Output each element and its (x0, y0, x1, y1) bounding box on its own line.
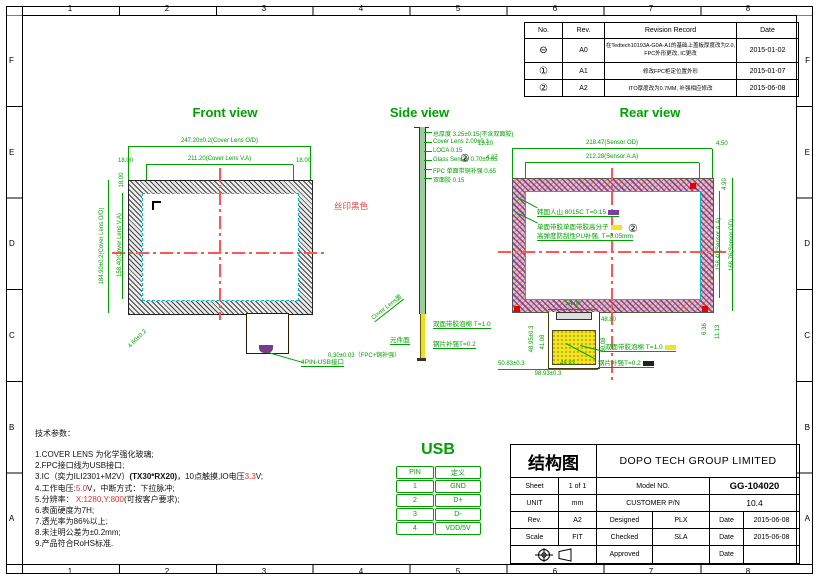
dim-line (122, 193, 123, 299)
frame-row-label: F (805, 56, 810, 65)
front-centerline-v (219, 168, 221, 320)
revision-row-rev: A2 (563, 80, 605, 97)
dim-line (128, 146, 311, 147)
model-label: Model NO. (597, 478, 710, 495)
note-line: 4.工作电压:5.0V，中断方式：下拉脉冲; (35, 483, 175, 494)
alignment-mark (702, 306, 708, 312)
side-layer-label: 双面胶 0.15 (433, 175, 464, 184)
date-value: 2015-06-08 (744, 512, 799, 529)
front-view-area (142, 193, 299, 301)
note-line: 5.分辨率： X:1280,Y:800(可按客户要求); (35, 494, 180, 505)
component-side-label: 元件面 (390, 334, 410, 345)
doc-type: 结构图 (511, 445, 597, 478)
frame-ticks-bottom (22, 565, 797, 573)
side-stack-fpc (420, 314, 425, 360)
note-seg: V; (256, 472, 263, 481)
note-seg: 4.工作电压: (35, 484, 76, 493)
frame-row-label: B (9, 423, 14, 432)
revision-row-rev: A0 (563, 39, 605, 63)
revision-row-no: ⊖ (525, 39, 563, 63)
dim-rear-left1: 13.20 (478, 141, 493, 147)
usb-header-def: 定义 (435, 466, 481, 479)
dim-tab-bottom1: 50.83±0.3 (498, 361, 525, 367)
rev-label: Rev. (511, 512, 559, 529)
dim-line (525, 162, 699, 163)
orientation-mark (152, 201, 161, 210)
usb-def: GND (435, 480, 481, 493)
note-line: 9.产品符合RoHS标准. (35, 538, 113, 549)
projection-symbol-cell (511, 546, 597, 563)
side-steel-label: 钢片补强T=0.2 (433, 338, 476, 349)
note-seg-red: X:1280,Y:800 (76, 495, 124, 504)
rear-pu-label: 高弹度防刮性PU补强, T=0.05mm (537, 230, 633, 241)
front-view-title: Front view (170, 105, 280, 120)
frame-col-label: 3 (254, 567, 274, 576)
dim-sensor-aa-width: 212.28(Sensor A.A) (525, 154, 699, 160)
rear-view-title: Rear view (600, 105, 700, 120)
designed-value: PLX (653, 512, 710, 529)
frame-row-label: E (9, 148, 14, 157)
side-layer-label: FPC 单面带铜补强 0.65 (433, 166, 496, 175)
purple-swatch (608, 210, 619, 215)
usb-def: VDD/5V (435, 522, 481, 535)
leader-line (424, 142, 432, 143)
sheet-value: 1 of 1 (559, 478, 597, 495)
frame-ticks-top (22, 7, 797, 15)
revision-header-rev: Rev. (563, 23, 605, 39)
note-seg: V，中断方式：下拉脉冲; (87, 484, 175, 493)
note-line: 1.COVER LENS 为化学强化玻璃; (35, 449, 154, 460)
rear-steel-text: 钢片补强T=0.2 (598, 360, 641, 367)
side-stack-glass (419, 127, 426, 314)
note-seg: 5.分辨率： (35, 495, 76, 504)
date-label: Date (710, 546, 744, 563)
note-line: 3.IC（奕力ILI2301+M2V）(TX30*RX20)，10点触摸,IO电… (35, 471, 263, 482)
dim-tab-width: 54.00 (548, 301, 598, 307)
title-block: 结构图 DOPO TECH GROUP LIMITED Sheet 1 of 1… (510, 444, 800, 564)
dim-line (548, 309, 598, 310)
note-seg-red: 5.0 (76, 484, 87, 493)
callout-2: ② (628, 222, 638, 235)
date-value: 2015-06-08 (744, 529, 799, 546)
usb-pin: 3 (396, 508, 434, 521)
frame-row-label: A (9, 514, 14, 523)
silk-print-label: 丝印黑色 (334, 200, 368, 212)
frame-row-label: A (805, 514, 810, 523)
frame-row-label: F (9, 56, 14, 65)
revision-row-rev: A1 (563, 63, 605, 80)
dim-front-od-width: 247.20±0.2(Cover Lens O/D) (128, 138, 311, 144)
frame-col-label: 4 (351, 4, 371, 13)
checked-value: SLA (653, 529, 710, 546)
scale-label: Scale (511, 529, 559, 546)
revision-header-date: Date (737, 23, 799, 39)
rear-tape-label: 韩国人山 8015C T=0.15 (537, 206, 619, 217)
dim-front-margin-right: 18.00 (296, 158, 311, 164)
fpc-thickness-label: 0.30±0.03（FPC+铜补强） (328, 350, 400, 359)
revision-header-record: Revision Record (605, 23, 737, 39)
notes-heading: 技术参数： (35, 428, 75, 439)
revision-table: No. Rev. Revision Record Date ⊖ A0 在Tedt… (524, 22, 799, 97)
dim-rear-right2: 4.90 (722, 168, 728, 200)
frame-col-label: 8 (738, 567, 758, 576)
frame-row-label: B (805, 423, 810, 432)
rear-foam-label: 双面带胶泡棉 T=1.0 (605, 341, 676, 352)
note-line: 6.表面硬度为7H; (35, 505, 94, 516)
dim-rear-right1: 4.50 (716, 141, 728, 147)
dim-line (108, 180, 109, 313)
revision-row-date: 2015-06-08 (737, 80, 799, 97)
frame-col-label: 4 (351, 567, 371, 576)
rev-value: A2 (559, 512, 597, 529)
ext-line (712, 149, 713, 178)
frame-col-label: 7 (641, 4, 661, 13)
leader-line (424, 160, 432, 161)
note-seg: (可按客户要求); (124, 495, 180, 504)
dark-swatch (643, 361, 654, 366)
dim-tab-left1: 48.95±0.3 (529, 309, 535, 369)
date-label: Date (710, 512, 744, 529)
sheet-label: Sheet (511, 478, 559, 495)
date-value (744, 546, 799, 563)
dim-front-va-width: 211.20(Cover Lens V.A) (146, 156, 293, 162)
checked-label: Checked (597, 529, 653, 546)
side-foam-label: 双面带胶泡棉 T=1.0 (433, 318, 491, 329)
revision-row-date: 2015-01-02 (737, 39, 799, 63)
frame-col-label: 3 (254, 4, 274, 13)
alignment-mark (514, 306, 520, 312)
usb-def: D- (435, 508, 481, 521)
dim-rear-br1: 6.36 (702, 313, 708, 345)
frame-col-label: 2 (157, 567, 177, 576)
dim-front-margin-top: 18.00 (119, 162, 125, 198)
usb-pin: 2 (396, 494, 434, 507)
usb-table-title: USB (396, 441, 480, 459)
frame-col-label: 1 (60, 567, 80, 576)
dim-rear-left2: 4.27 (486, 155, 498, 161)
rear-tape-text: 韩国人山 8015C T=0.15 (537, 209, 606, 216)
frame-row-label: D (9, 239, 15, 248)
rear-tab-connector (556, 312, 592, 320)
usb-header-pin: PIN (396, 466, 434, 479)
dim-tab-left2: 41.08 (540, 312, 546, 372)
yellow-swatch (665, 345, 676, 350)
note-line: 7.透光率为86%以上; (35, 516, 108, 527)
leader-line (424, 151, 432, 152)
dim-sensor-od-width: 218.47(Sensor OD) (512, 140, 712, 146)
designed-label: Designed (597, 512, 653, 529)
note-seg-red: 3.3 (245, 472, 256, 481)
frame-col-label: 6 (545, 4, 565, 13)
usb-pin-table: PIN 定义 1 GND 2 D+ 3 D- 4 VDD/5V (396, 466, 481, 535)
model-value: GG-104020 (710, 478, 799, 495)
usb-pin: 1 (396, 480, 434, 493)
frame-col-label: 8 (738, 4, 758, 13)
dim-tab-bottom3: 98.93±0.3 (516, 371, 580, 377)
note-line: 2.FPC接口线为USB接口; (35, 460, 124, 471)
approved-label: Approved (597, 546, 653, 563)
dim-line (512, 148, 712, 149)
side-stack-steel (417, 358, 426, 361)
frame-ticks-left (7, 15, 22, 565)
unit-label: UNIT (511, 495, 559, 512)
note-seg: ，10点触摸,IO电压 (177, 472, 245, 481)
frame-row-label: E (805, 148, 810, 157)
dim-line (719, 191, 720, 298)
dim-rear-br2: 11.13 (715, 316, 721, 348)
revision-row-date: 2015-01-07 (737, 63, 799, 80)
ext-line (512, 149, 513, 178)
frame-col-label: 1 (60, 4, 80, 13)
frame-row-label: C (9, 331, 15, 340)
note-seg-bold: (TX30*RX20) (129, 472, 177, 481)
revision-row-record: 修改FPC柜定位置外形 (605, 63, 737, 80)
side-layer-label: LOCA 0.15 (433, 148, 462, 154)
rear-foam-text: 双面带胶泡棉 T=1.0 (605, 344, 663, 351)
rear-steel-label: 钢片补强T=0.2 (598, 357, 654, 368)
customer-pn-value: 10.4 (710, 495, 799, 512)
frame-row-label: D (804, 239, 810, 248)
usb-connector (259, 345, 273, 353)
projection-symbol-icon (533, 548, 575, 562)
usb-pin: 4 (396, 522, 434, 535)
company-name: DOPO TECH GROUP LIMITED (597, 445, 799, 478)
frame-row-label: C (804, 331, 810, 340)
revision-row-record: 在Tedtech10193A-G0A-A1的基础上盖板厚度改为2.0, FPC外… (605, 39, 737, 63)
approved-value (653, 546, 710, 563)
customer-pn-label: CUSTOMER P/N (597, 495, 710, 512)
frame-col-label: 5 (448, 4, 468, 13)
note-line: 8.未注明公差为±0.2mm; (35, 527, 121, 538)
dim-tab-bottom2: 48.83 (560, 361, 575, 367)
revision-header-no: No. (525, 23, 563, 39)
date-label: Date (710, 529, 744, 546)
dim-line (732, 178, 733, 311)
frame-col-label: 6 (545, 567, 565, 576)
leader-line (424, 132, 432, 133)
leader-line (424, 169, 432, 170)
frame-col-label: 2 (157, 4, 177, 13)
usb-def: D+ (435, 494, 481, 507)
leader-line (424, 178, 432, 179)
alignment-mark (690, 183, 696, 189)
drawing-sheet: 1 2 3 4 5 6 7 8 1 2 3 4 5 6 7 8 F E D C … (0, 0, 819, 580)
side-view-title: Side view (372, 105, 467, 120)
side-layer-label: 总厚度 3.25±0.15(不含双面胶) (433, 129, 513, 138)
unit-value: mm (559, 495, 597, 512)
note-seg: 3.IC（奕力ILI2301+M2V） (35, 472, 129, 481)
frame-col-label: 5 (448, 567, 468, 576)
dim-line (498, 369, 598, 370)
scale-value: FIT (559, 529, 597, 546)
revision-row-no: ① (525, 63, 563, 80)
revision-row-record: ITO厚度改为0.7MM, 补强相应修改 (605, 80, 737, 97)
frame-col-label: 7 (641, 567, 661, 576)
dim-front-od-height: 184.90±0.2(Cover Lens O/D) (99, 176, 105, 316)
dim-line (146, 164, 293, 165)
callout-2: ② (460, 152, 470, 165)
revision-row-no: ② (525, 80, 563, 97)
